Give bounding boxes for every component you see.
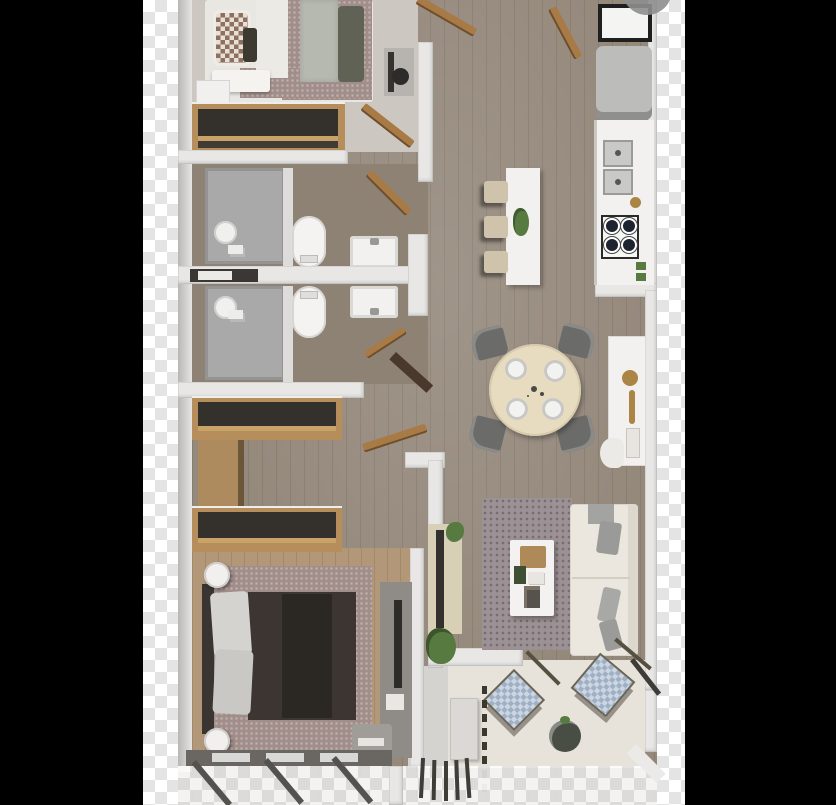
wardrobe-3-interior: [198, 512, 336, 538]
towel: [198, 271, 232, 280]
grate-bar-2: [432, 760, 437, 800]
floor-plan: [0, 0, 836, 805]
table-centerpiece: [531, 386, 537, 392]
kitchen-faucet: [630, 197, 641, 208]
bed-bottom-pillow-1: [210, 591, 252, 657]
faucet-2: [370, 308, 379, 315]
wall-bedroom-top-bottom: [178, 150, 348, 164]
fridge: [596, 46, 652, 120]
shower-drain-1: [214, 221, 237, 244]
desk-gold-strip: [629, 390, 635, 424]
toilet-1-buttons: [300, 255, 318, 263]
sink-drain-dot-1: [615, 150, 621, 156]
burner-3: [606, 239, 618, 251]
wardrobe-2-interior: [198, 402, 336, 426]
wardrobe-top-interior: [198, 109, 338, 136]
plate-3: [506, 398, 528, 420]
bar-stool-3: [484, 251, 508, 273]
plate-1: [505, 358, 527, 380]
bed-bottom-pillow-2: [212, 649, 253, 715]
wardrobe-2-shelf: [198, 426, 336, 431]
faucet-1: [370, 238, 379, 245]
bar-stool-1: [484, 181, 508, 203]
coffee-table-tray: [520, 546, 546, 568]
coffee-table-papers: [528, 572, 544, 584]
desk-lamp: [622, 370, 638, 386]
bottom-fade-checker: [178, 766, 657, 805]
floor-plant: [426, 628, 456, 664]
checkerboard-strip-right: [657, 0, 685, 805]
wardrobe-top-lower: [198, 141, 338, 148]
wardrobe-3-shelf: [198, 538, 336, 543]
wall-corridor-top: [418, 42, 433, 182]
island-plant: [513, 208, 529, 236]
desk-chair-top: [392, 68, 409, 85]
desk-pad: [626, 428, 640, 458]
plate-2: [544, 360, 566, 382]
coffee-table-frame: [524, 586, 540, 608]
coffee-table-green-box: [514, 566, 526, 584]
shower-bottles-2: [228, 310, 243, 319]
wall-right-mid: [645, 290, 657, 690]
bedpost-top: [204, 562, 230, 588]
balcony-planter: [549, 720, 581, 752]
wall-balcony-right: [645, 690, 657, 752]
sofa-seam: [572, 577, 630, 579]
desk-chair: [600, 438, 624, 468]
checkerboard-strip-left: [143, 0, 178, 805]
bedroom-stool-slat: [358, 738, 384, 746]
burner-2: [623, 220, 635, 232]
media-dresser-tv: [394, 600, 402, 688]
grate-bar-3: [444, 761, 448, 801]
balcony-console: [450, 698, 478, 760]
tv-screen: [436, 530, 444, 628]
burner-4: [623, 239, 635, 251]
nightstand-top: [196, 80, 230, 103]
kitchen-green-1: [636, 262, 646, 270]
window-slit-1: [212, 753, 250, 762]
bed-top-duvet-sage: [300, 0, 338, 82]
window-slit-2: [266, 753, 304, 762]
shower-bottles-1: [228, 245, 243, 254]
sofa-blanket: [596, 521, 622, 556]
pillow-dark: [243, 28, 257, 62]
sink-drain-dot-2: [615, 179, 621, 185]
toilet-2-buttons: [300, 291, 318, 299]
bar-stool-2: [484, 216, 508, 238]
kitchen-green-2: [636, 273, 646, 281]
bathroom-1-shower: [205, 168, 285, 264]
planter-green: [560, 716, 570, 724]
wall-bedroom-bottom-right: [410, 548, 424, 768]
bed-top-sheet: [256, 0, 288, 78]
wall-stub-bottom: [389, 766, 403, 805]
bed-top-throw-olive: [338, 6, 364, 82]
media-dresser-cloth: [386, 694, 404, 710]
plate-4: [542, 398, 564, 420]
burner-1: [606, 220, 618, 232]
dresser-wood-block: [198, 440, 244, 516]
wall-sink-right: [408, 234, 428, 316]
bed-bottom-duvet-stripe: [282, 594, 332, 718]
